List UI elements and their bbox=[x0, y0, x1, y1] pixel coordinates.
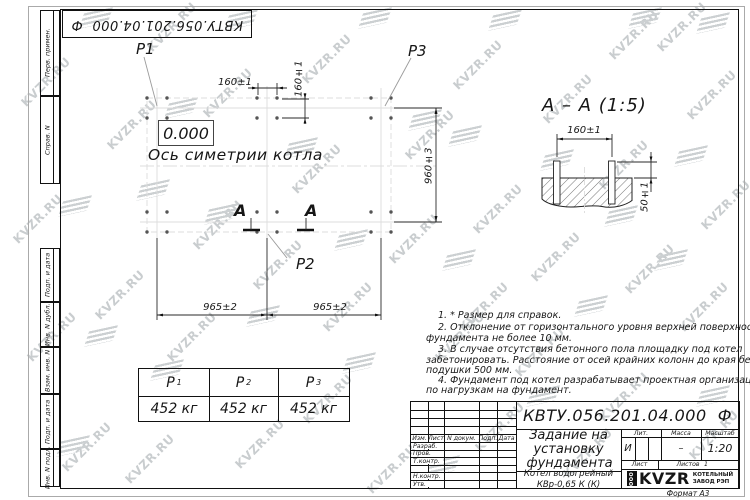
plan-dimensions bbox=[157, 83, 442, 320]
format-label: Формат А3 bbox=[648, 489, 728, 498]
dim-section-160: 160±1 bbox=[562, 125, 606, 136]
note-line: фундамента не более 10 мм. bbox=[426, 333, 572, 344]
elevation-value: 0.000 bbox=[163, 124, 209, 143]
tb-scale-value: 1:20 bbox=[701, 437, 739, 460]
tb-row-tkontr: Т.контр. bbox=[412, 458, 443, 464]
tb-list-label: Лист bbox=[621, 460, 658, 469]
tb-row-nkontr: Н.контр. bbox=[412, 473, 443, 479]
page: { "watermark": { "text": "KVZR.RU" }, "s… bbox=[0, 0, 750, 500]
load-table: P1 P2 P3 452 кг 452 кг 452 кг bbox=[138, 368, 350, 422]
tb-row-utv: Утв. bbox=[412, 481, 443, 487]
note-line: 2. Отклонение от горизонтального уровня … bbox=[438, 322, 750, 333]
load-point-p3-label: P3 bbox=[408, 42, 427, 60]
note-line: 3. В случае отсутствия бетонного пола пл… bbox=[438, 344, 742, 355]
plan-anchor-bolts bbox=[145, 96, 392, 233]
load-table-value-p1: 452 кг bbox=[139, 396, 209, 421]
load-table-value-p3: 452 кг bbox=[278, 396, 349, 421]
title-block: Изм. Лист N докум. Подп. Дата Разраб. Пр… bbox=[410, 401, 740, 489]
tb-doc-number: КВТУ.056.201.04.000 Ф bbox=[516, 402, 739, 429]
tb-lit-value: И bbox=[621, 437, 635, 460]
anchor-bolt bbox=[554, 161, 561, 204]
tb-massa-value: – bbox=[661, 437, 701, 460]
tb-lit-label: Лит. bbox=[621, 429, 661, 437]
note-line: по нагрузкам на фундамент. bbox=[426, 385, 572, 396]
load-point-p2-label: P2 bbox=[296, 255, 315, 273]
tb-row-prov: Пров. bbox=[412, 451, 443, 457]
dim-160-vertical: 160±1 bbox=[292, 57, 306, 101]
kvzr-logo: ООО KVZR КОТЕЛЬНЫЙ ЗАВОД РЭП bbox=[621, 469, 739, 488]
load-table-header-p2: P2 bbox=[209, 369, 278, 396]
kvzr-logo-tagline: КОТЕЛЬНЫЙ ЗАВОД РЭП bbox=[693, 472, 733, 485]
section-letter-a-right: А bbox=[305, 201, 317, 220]
tb-massa-label: Масса bbox=[661, 429, 701, 437]
section-title: А – А (1:5) bbox=[542, 95, 647, 116]
dim-965-left: 965±2 bbox=[198, 302, 242, 313]
dim-160-horizontal: 160±1 bbox=[218, 77, 252, 88]
load-table-header-p1: P1 bbox=[139, 369, 209, 396]
tb-col-data: Дата bbox=[497, 434, 516, 442]
kvzr-logo-mark-icon: ООО bbox=[627, 471, 637, 486]
kvzr-logo-name: KVZR bbox=[639, 469, 690, 488]
load-point-p1-label: P1 bbox=[136, 40, 155, 58]
anchor-bolt bbox=[609, 161, 616, 204]
note-line: 1. * Размер для справок. bbox=[438, 310, 561, 321]
dim-960: 960±3 bbox=[422, 140, 436, 192]
section-cut-marks bbox=[243, 218, 314, 230]
load-table-value-p2: 452 кг bbox=[209, 396, 278, 421]
tb-listov-value: 1 bbox=[696, 460, 716, 469]
tb-col-list: Лист bbox=[428, 434, 444, 442]
tb-product: Котел водогрейный КВр-0,65 К (К) bbox=[516, 471, 621, 488]
dim-section-50: 50±1 bbox=[638, 176, 652, 218]
tb-row-razrab: Разраб. bbox=[412, 443, 443, 449]
elevation-mark: 0.000 bbox=[158, 120, 214, 146]
tb-title: Задание на установку фундамента bbox=[516, 429, 621, 471]
section-letter-a-left: А bbox=[234, 201, 246, 220]
tb-col-ndokum: N докум. bbox=[444, 434, 479, 442]
dim-965-right: 965±2 bbox=[308, 302, 352, 313]
plan-centerlines bbox=[140, 86, 438, 242]
load-table-header-p3: P3 bbox=[278, 369, 349, 396]
tb-masshtab-label: Масштаб bbox=[701, 429, 739, 437]
tb-col-izm: Изм. bbox=[411, 434, 428, 442]
symmetry-axis-label: Ось симетрии котла bbox=[148, 146, 323, 164]
tb-col-podp: Подп. bbox=[479, 434, 497, 442]
